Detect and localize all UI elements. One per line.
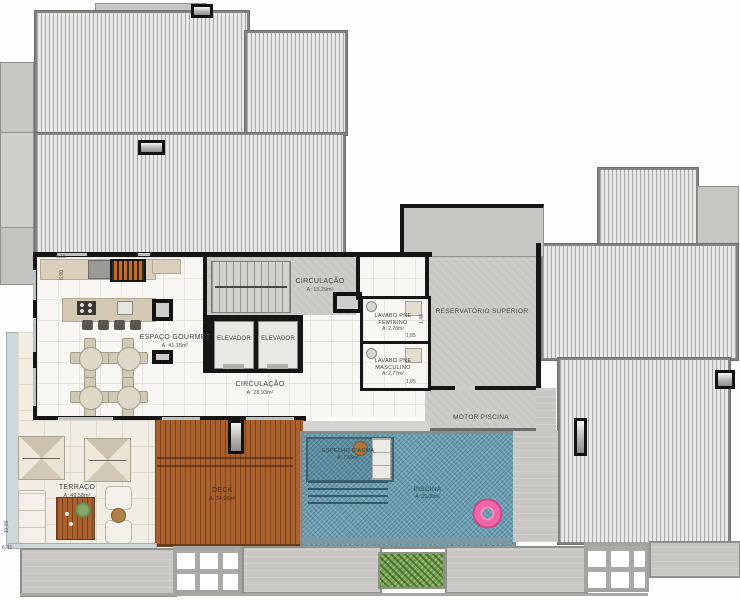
wall-reservatorio-bottom (425, 386, 541, 390)
floor-plan-canvas: ELEVADOR ELEVADOR (0, 0, 740, 600)
terraco-label: TERRAÇO A: 49,58m² (37, 484, 117, 500)
bar-stool (82, 320, 93, 330)
terraco-area: A: 49,58m² (37, 493, 117, 500)
circulacao-main-area: A: 28,93m² (215, 390, 305, 397)
reservatorio-door (455, 386, 475, 390)
roof-right-main (541, 244, 738, 360)
pool-float-icon (471, 497, 504, 530)
roof-mid (35, 133, 345, 254)
pool-step-line (308, 481, 388, 483)
concrete-east-strip (536, 388, 556, 432)
elevator-door (223, 364, 244, 369)
elevator-car-2: ELEVADOR (258, 321, 298, 369)
window-segment (33, 368, 36, 406)
roof-top-main (35, 11, 249, 135)
piscina-area: A: 39,06m² (390, 494, 465, 500)
roof-vent-slot-icon (574, 418, 587, 456)
circulacao-main-name: CIRCULAÇÃO (236, 381, 285, 388)
dim-lavabo-height: 1,48 (419, 309, 425, 329)
lavabo-sink-icon (366, 301, 377, 312)
elevator-2-label: ELEVADOR (259, 336, 297, 342)
roof-right-upper (598, 168, 698, 248)
window-segment (33, 270, 36, 300)
walkway-slab (242, 546, 382, 594)
deck-label: DECK A: 34,96m² (185, 487, 260, 503)
circulacao-main-label: CIRCULAÇÃO A: 28,93m² (215, 381, 305, 397)
dim-top-left-height: 6,90 (59, 263, 65, 287)
dim-top-left-width: 6,15 (56, 254, 66, 260)
deck-pillar (228, 420, 244, 454)
elevator-car-1: ELEVADOR (214, 321, 254, 369)
dining-table-set (108, 377, 148, 417)
decor-dot (69, 522, 73, 526)
espelho-dagua-area: A: 7,56m² (308, 455, 388, 461)
decor-dot (65, 512, 69, 516)
gourmet-name: ESPAÇO GOURMET (140, 334, 211, 341)
fireplace-box (152, 299, 173, 321)
garden-planter (378, 552, 445, 589)
counter-sink (152, 259, 181, 274)
stair-rail (215, 286, 287, 288)
terrace-walkway (18, 332, 33, 420)
wall-reservatorio-right (536, 243, 541, 391)
window-segment (138, 253, 150, 256)
piscina-label: PISCINA A: 39,06m² (390, 486, 465, 500)
lavabo-masc-label: LAVABO PNE MASCULINO A: 2,77m² (362, 358, 424, 377)
roof-flat-right-upper (697, 186, 739, 246)
elevator-1-label: ELEVADOR (215, 336, 253, 342)
reservatorio-slab (400, 204, 544, 257)
dining-table-set (70, 377, 110, 417)
motor-piscina-label: MOTOR PISCINA (427, 414, 535, 422)
reservatorio-label: RESERVATÓRIO SUPERIOR (428, 308, 536, 316)
ledge-left-mid (0, 132, 34, 229)
bottom-edge-line (20, 593, 648, 596)
ledge-left-upper (0, 62, 34, 134)
dim-terrace-height: 10,15 (4, 514, 10, 540)
circulacao-top-name: CIRCULAÇÃO (296, 278, 345, 285)
wall-stairs-left (203, 252, 207, 318)
concrete-pool-east (513, 431, 558, 542)
deck-step-line (157, 465, 293, 467)
lavabo-masc-name2: MASCULINO (375, 365, 410, 371)
skylight-grid (584, 542, 649, 592)
roof-vent-icon (138, 140, 165, 155)
deck-area: A: 34,96m² (185, 496, 260, 503)
lavabo-fem-name2: FEMININO (378, 320, 407, 326)
lavabo-masc-area: A: 2,77m² (362, 371, 424, 377)
reservatorio-floor (429, 257, 536, 386)
motor-piscina-floor (425, 390, 539, 431)
reservatorio-name: RESERVATÓRIO SUPERIOR (436, 308, 529, 315)
walkway-slab (445, 546, 588, 594)
walkway-slab (20, 548, 177, 597)
window-segment (33, 318, 36, 352)
espelho-dagua-name: ESPELHO D'ÁGUA (322, 448, 374, 454)
dim-terrace-width: 6,43 (2, 545, 12, 551)
dining-table-set (70, 338, 110, 378)
ledge-left-lower (0, 227, 34, 285)
bar-stool (130, 320, 141, 330)
terraco-name: TERRAÇO (59, 484, 95, 491)
pool-step-line (308, 495, 388, 497)
staircase (211, 261, 291, 313)
armchair-icon (105, 520, 132, 544)
pool-south-rail (302, 538, 510, 544)
lavabo-fem-area: A: 2,78m² (362, 326, 424, 332)
gourmet-area: A: 41,18m² (130, 343, 220, 350)
column-box (152, 350, 173, 364)
grill-icon (110, 259, 146, 282)
dim-lavabo-fem-width: 1,85 (406, 333, 416, 339)
motor-piscina-name: MOTOR PISCINA (453, 414, 509, 421)
gourmet-label: ESPAÇO GOURMET A: 41,18m² (130, 334, 220, 350)
deck-name: DECK (212, 487, 233, 494)
lavabo-fem-label: LAVABO PNE FEMININO A: 2,78m² (362, 313, 424, 332)
plant-icon (75, 502, 91, 518)
circulacao-top-area: A: 15,29m² (280, 287, 360, 294)
umbrella-lounger-icon (84, 438, 131, 482)
island-sink-icon (117, 301, 133, 315)
bar-stool (114, 320, 125, 330)
deck-step-line (157, 457, 293, 459)
lavabo-fem-name1: LAVABO PNE (374, 313, 411, 319)
piscina-name: PISCINA (413, 486, 441, 493)
roof-vent-icon (191, 4, 213, 18)
fridge-icon (88, 260, 111, 279)
coffee-table (56, 497, 95, 540)
dim-lavabo-masc-width: 1,85 (406, 379, 416, 385)
lavabo-masc-name1: LAVABO PNE (374, 358, 411, 364)
walkway-slab (649, 541, 740, 578)
pool-step-line (308, 488, 388, 490)
skylight-grid (173, 546, 242, 594)
roof-vent-icon (715, 370, 735, 389)
elevator-door (267, 364, 288, 369)
cooktop-icon (77, 301, 96, 315)
roof-top-right (245, 31, 347, 135)
circulacao-top-label: CIRCULAÇÃO A: 15,29m² (280, 278, 360, 294)
wall-lavabo-divider (360, 341, 431, 344)
side-table-icon (111, 508, 126, 523)
espelho-dagua-label: ESPELHO D'ÁGUA A: 7,56m² (308, 448, 388, 461)
bar-stool (98, 320, 109, 330)
wall-top (33, 252, 432, 257)
pool-step-line (308, 502, 388, 504)
umbrella-lounger-icon (18, 436, 65, 480)
